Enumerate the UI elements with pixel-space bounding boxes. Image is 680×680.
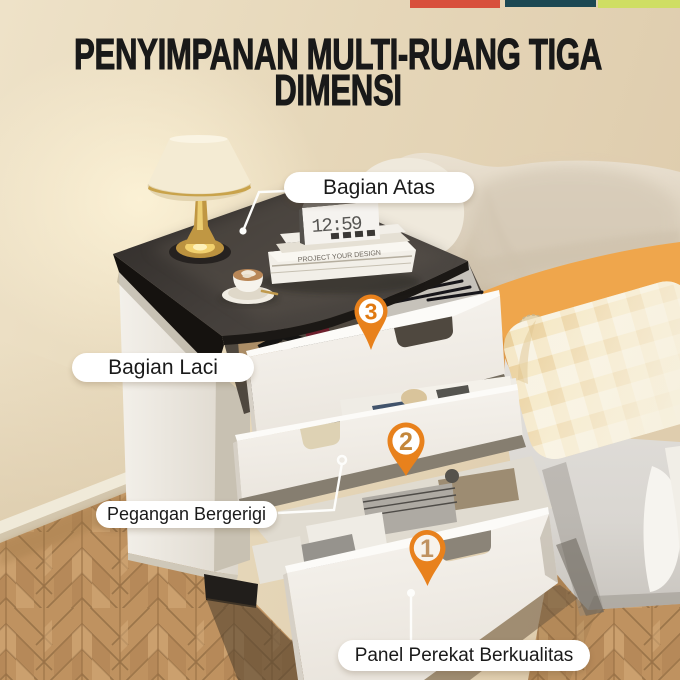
svg-text:1: 1 — [420, 535, 434, 563]
svg-text:3: 3 — [365, 299, 378, 325]
svg-text:2: 2 — [399, 428, 413, 456]
